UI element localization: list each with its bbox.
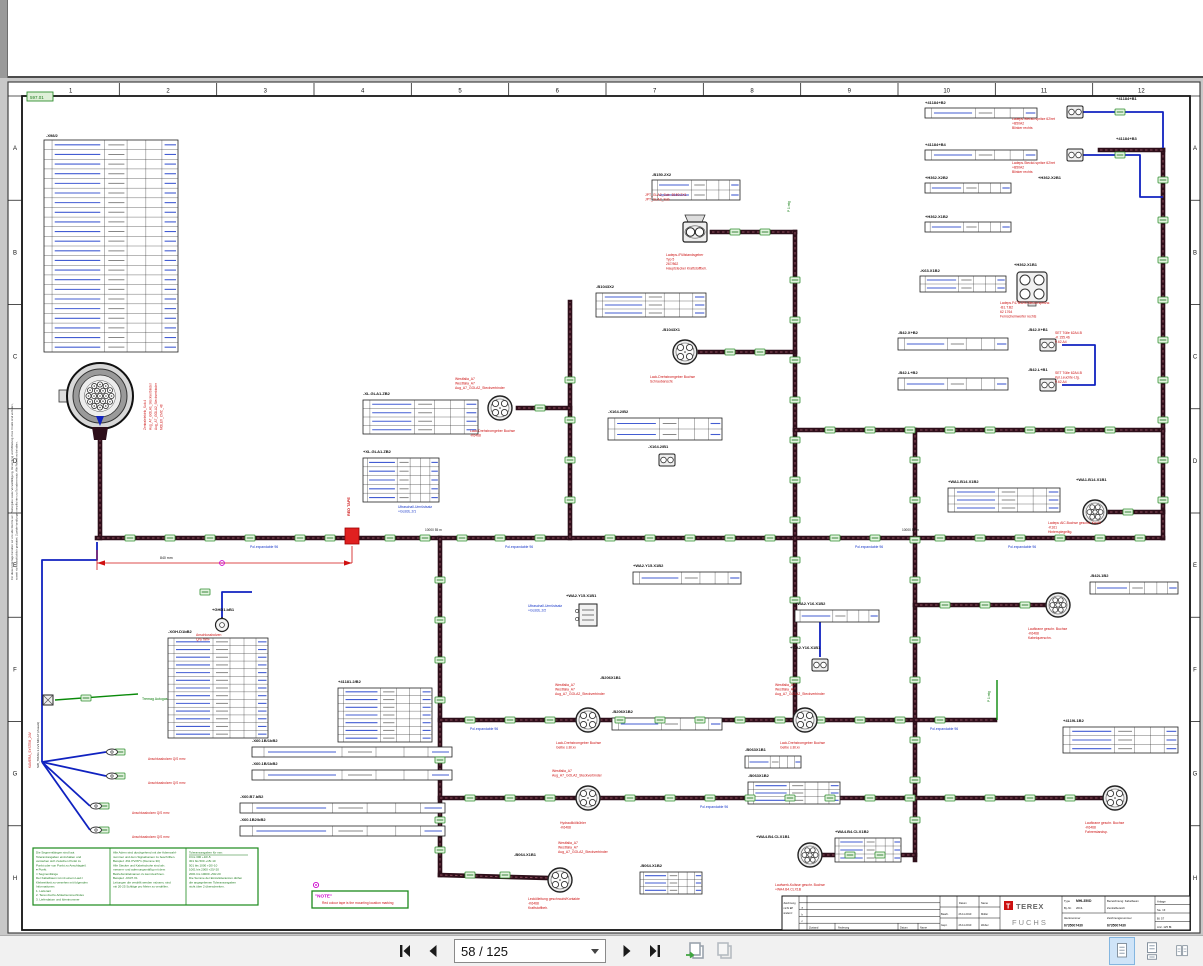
mini-table xyxy=(252,770,452,780)
extract-page-button[interactable] xyxy=(710,938,736,964)
schematic-label: Hinterspiegelltg. xyxy=(1048,530,1072,534)
legend-box: Die Segmentlängen sind lautToleranzangab… xyxy=(33,848,258,905)
schematic-label: Lack-Drehstromgeber Buchse xyxy=(650,375,695,379)
svg-text:T: T xyxy=(1006,904,1011,911)
svg-text:10: 10 xyxy=(943,89,950,95)
schematic-label: Blinker rechts xyxy=(1012,126,1033,130)
header-left-strip xyxy=(0,0,8,78)
schematic-label: -XL.GLA1.ZB2 xyxy=(363,391,391,396)
mini-table xyxy=(920,276,1006,292)
application-window: 123456789101112AABBCCDDEEFFGGHH 597.01 F… xyxy=(0,0,1203,966)
title-block: Zeichnung nicht EP ändern! a b c Zustand… xyxy=(782,896,1190,930)
schematic-label: Hydraulikölkühler xyxy=(560,821,587,825)
schematic-label: +GLB3L.2/1 xyxy=(398,510,416,514)
schematic-label: Westfalia_A7 xyxy=(775,688,795,692)
schematic-label: Zentralelektrik_Sub.4 xyxy=(143,400,147,430)
schematic-label: -K6468 xyxy=(528,902,539,906)
schematic-label: Q/S mm² xyxy=(196,638,210,642)
first-page-button[interactable] xyxy=(392,938,418,964)
schematic-label: SW_TRIAG 1.LV3 MO-A7 (Zusatz) xyxy=(36,722,40,768)
corner-reference-tag: 597.01 xyxy=(27,92,53,101)
brand-terex: TEREX xyxy=(1016,902,1044,911)
schematic-page: 123456789101112AABBCCDDEEFFGGHH 597.01 F… xyxy=(0,80,1203,935)
schematic-label: -B1043X2 xyxy=(596,284,615,289)
prev-page-button[interactable] xyxy=(420,938,446,964)
connector-sq2 xyxy=(1040,379,1056,391)
schematic-label: +41181.2/B2 xyxy=(338,679,362,684)
schematic-label: -B150.2X2 xyxy=(652,172,672,177)
connector-sq2 xyxy=(1040,339,1056,351)
schematic-label: Pol.expandable 96 xyxy=(1008,545,1036,549)
connector-oval xyxy=(107,773,118,779)
mini-table xyxy=(596,293,706,317)
single-page-view-button[interactable] xyxy=(1109,937,1135,965)
svg-text:nicht über 2 überschreiten.: nicht über 2 überschreiten. xyxy=(189,885,225,889)
mini-table xyxy=(252,747,452,757)
svg-text:A: A xyxy=(13,146,17,152)
mini-table xyxy=(44,140,178,352)
schematic-label: -X60.1B/1bB2 xyxy=(252,761,278,766)
schematic-label: MOLEX_CMC_48 xyxy=(160,404,164,430)
svg-text:Bearb.: Bearb. xyxy=(941,912,949,916)
mini-table xyxy=(835,838,901,862)
schematic-label: -K 155.46 xyxy=(1055,336,1070,340)
connector-sens xyxy=(575,604,597,626)
connector-r4 xyxy=(576,708,600,732)
schematic-label: -K6468 xyxy=(1085,826,1096,830)
schematic-label: -X98/2 xyxy=(46,133,59,138)
mini-table xyxy=(925,150,1037,160)
svg-text:11: 11 xyxy=(1041,89,1048,95)
schematic-label: Westfalia_A7 xyxy=(558,846,578,850)
type-label: Type xyxy=(1064,899,1071,903)
mini-table xyxy=(898,338,1008,350)
import-page-button[interactable] xyxy=(682,938,708,964)
footer-zustand: Zustand xyxy=(809,926,819,930)
svg-text:C: C xyxy=(1193,355,1198,361)
schematic-label: Westfalia_A7 xyxy=(552,769,572,773)
schematic-label: Westfalia_A7 xyxy=(775,683,795,687)
footer-aenderung: Änderung xyxy=(838,926,850,930)
schematic-label: +B50A2 xyxy=(1012,166,1024,170)
svg-text:G: G xyxy=(1193,772,1198,778)
svg-text:E: E xyxy=(1193,563,1197,569)
single-page-view-icon xyxy=(1116,940,1128,962)
mini-table xyxy=(240,803,445,813)
schematic-label: +4119L1B2 xyxy=(1063,718,1085,723)
mini-table xyxy=(338,688,432,742)
schematic-label: +H362.X1B2 xyxy=(925,214,949,219)
page-indicator: 58 / 125 xyxy=(455,944,591,959)
schematic-label: Pol.expandable 96 xyxy=(855,545,883,549)
next-page-icon xyxy=(619,943,635,959)
mini-table xyxy=(1090,582,1178,594)
schematic-label: Lack-Drehstromgeber Buchse xyxy=(780,741,825,745)
import-page-icon xyxy=(685,942,705,960)
schematic-label: Kabelquerschn. xyxy=(1028,636,1052,640)
schematic-label: Pol.expandable 96 xyxy=(930,727,958,731)
schematic-label: Pol.expandable 96 xyxy=(700,805,728,809)
svg-text:H: H xyxy=(13,876,17,882)
schematic-label: -K161 xyxy=(1048,526,1057,530)
red-tape-marker xyxy=(345,528,359,544)
brand-fuchs: FUCHS xyxy=(1012,918,1048,927)
schematic-label: +B50A2 xyxy=(1012,122,1024,126)
schematic-label: Kpl.Leuchte-Ltg. xyxy=(1055,376,1080,380)
connector-r4 xyxy=(673,340,697,364)
schematic-label: +WA2.Y16.X1B2 xyxy=(795,601,826,606)
schematic-label: P 1 mtg xyxy=(787,201,791,212)
mini-table xyxy=(168,638,268,738)
proprietary-notice-line1: Für diese Unterlage behalten wir uns all… xyxy=(10,403,14,580)
svg-text:ändern!: ändern! xyxy=(784,911,793,915)
app-header xyxy=(0,0,1203,78)
schematic-label: Schraubanschl. xyxy=(650,380,673,384)
mini-table xyxy=(640,872,702,894)
connector-r6 xyxy=(1046,593,1070,617)
combobox-dropdown-arrow-icon xyxy=(591,949,599,954)
mini-table xyxy=(925,183,1011,193)
svg-text:A: A xyxy=(1193,146,1197,152)
schematic-label: +H362.X2B2 xyxy=(925,175,949,180)
svg-text:3. Lieferdatum und Identnummer: 3. Lieferdatum und Identnummer xyxy=(36,897,80,901)
svg-text:Zentralbereich: Zentralbereich xyxy=(1107,906,1125,910)
schematic-label: 10000 55 m xyxy=(425,528,442,532)
schematic-label: -B42L1B2 xyxy=(1090,573,1109,578)
mini-table xyxy=(363,400,478,434)
prev-page-icon xyxy=(425,943,441,959)
svg-text:F: F xyxy=(1193,667,1197,673)
bottom-toolbar: 58 / 125 xyxy=(0,935,1203,966)
schematic-label: Ladeps.Steckd.spritze 62/ret xyxy=(1012,161,1055,165)
schematic-label: Ladeps.F47B42N.Steckd.spritzw. xyxy=(1000,301,1050,305)
schematic-label: -K6468 xyxy=(560,826,571,830)
schematic-label: -B064.X1B2 xyxy=(640,863,663,868)
schematic-label: Fahrerstandsp. xyxy=(1085,830,1108,834)
svg-text:nicht EP: nicht EP xyxy=(784,906,794,910)
svg-text:B: B xyxy=(1193,250,1197,256)
svg-text:Weber: Weber xyxy=(981,923,989,927)
schematic-label: 267/862 xyxy=(666,262,678,266)
schematic-label: Pol.expandable 96 xyxy=(470,727,498,731)
connector-r4 xyxy=(488,396,512,420)
schematic-label: Gelbe s.Bl.xx xyxy=(556,746,576,750)
next-page-button[interactable] xyxy=(614,938,640,964)
schematic-label: 62 1764 xyxy=(1000,310,1012,314)
schematic-label: -X60.1B/1bB2 xyxy=(252,738,278,743)
mini-table xyxy=(1063,727,1178,753)
svg-text:C: C xyxy=(13,355,18,361)
svg-text:12: 12 xyxy=(1138,89,1145,95)
schematic-label: Aug_A7_GOLA2_Steckverbinder xyxy=(154,382,158,430)
svg-text:Anlage: Anlage xyxy=(1157,900,1166,904)
schematic-label: Lack-Drehstromgeber Buchse xyxy=(556,741,601,745)
schematic-label: -K6468 xyxy=(470,434,481,438)
schematic-label: Ladeps-/Füllstandsgeber xyxy=(666,253,704,257)
schematic-label: Westfalia_A7 xyxy=(555,688,575,692)
schematic-label: 9.62.A4 xyxy=(1055,340,1067,344)
continuous-view-button[interactable] xyxy=(1139,937,1165,965)
schematic-label: Typ 5 xyxy=(666,258,674,262)
schematic-label: +41184+B2 xyxy=(925,100,946,105)
footer-name: Name xyxy=(920,926,927,930)
schematic-label: 9.62.A4 xyxy=(1055,380,1067,384)
schematic-label: -B206X1B2 xyxy=(612,709,634,714)
header-datum: Datum xyxy=(959,901,967,905)
ident-number: 6735007430 xyxy=(1064,924,1083,928)
svg-text:D: D xyxy=(1193,459,1198,465)
schematic-label: -X60.B7.bB2 xyxy=(240,794,264,799)
connector-sq2 xyxy=(1067,106,1083,118)
schematic-label: Fernscheinwerfer rechts xyxy=(1000,315,1037,319)
mini-table xyxy=(612,718,722,730)
mini-table xyxy=(240,826,445,836)
connector-r4 xyxy=(576,786,600,810)
connector-sqb xyxy=(683,215,707,242)
schematic-label: Westfalia_A7 xyxy=(455,377,475,381)
header-name: Name xyxy=(981,901,988,905)
schematic-label: Ultraschall-Umrüstsatz xyxy=(528,604,562,608)
schematic-label: Aug_A7_GOLA2_Steckverbinder xyxy=(552,774,603,778)
mini-table xyxy=(898,378,1008,390)
mini-table xyxy=(363,458,439,502)
schematic-label: Hauptstecker Kraftstoffbeh. xyxy=(666,267,707,271)
note-title: "NOTE" xyxy=(315,894,332,899)
schematic-label: Anschlussbolzen xyxy=(196,633,222,637)
first-page-icon xyxy=(397,943,413,959)
schematic-label: Ultraschall-Umrüstsatz xyxy=(398,505,432,509)
svg-text:B: B xyxy=(13,250,17,256)
schematic-label: +XL.GLA1.ZB2 xyxy=(363,449,392,454)
footer-datum: Datum xyxy=(900,926,908,930)
schematic-label: +GHD1.bB1 xyxy=(212,607,235,612)
schematic-label: +GLB3L.2/2 xyxy=(528,609,546,613)
drawing-number: 6735007430 xyxy=(1107,924,1126,928)
connector-r6 xyxy=(798,843,822,867)
schematic-label: Tremag Autogas xyxy=(142,697,168,701)
schematic-label: -B1043X1 xyxy=(662,327,681,332)
schematic-label: +WA1.B14.X1B1 xyxy=(1076,477,1107,482)
schematic-label: Pol.expandable 96 xyxy=(505,545,533,549)
schematic-label: -B42.L+B2 xyxy=(898,370,918,375)
schematic-label: -X164.2/B2 xyxy=(608,409,629,414)
schematic-label: Anschlussbolzen Q/S mm² xyxy=(148,757,186,761)
schematic-label: Aug_A7_GOLA1_Steckverbinder xyxy=(149,382,153,430)
schematic-label: Anschlussbolzen Q/S mm² xyxy=(148,781,186,785)
schematic-label: Westfalia_A7 xyxy=(555,683,575,687)
schematic-label: +WA2.Y16.X1B1 xyxy=(790,645,821,650)
schematic-label: -B42.X+B2 xyxy=(898,330,919,335)
connector-r4 xyxy=(793,708,817,732)
svg-text:mit 20-25 Schläge pro Meter zu: mit 20-25 Schläge pro Meter zu verdrille… xyxy=(113,885,169,889)
schematic-label: Gelbe s.Bl.xx xyxy=(780,746,800,750)
schematic-label: -X164.2/B1 xyxy=(648,444,669,449)
connector-oval xyxy=(107,749,118,755)
svg-text:26.11.2010: 26.11.2010 xyxy=(959,923,972,927)
schematic-label: RED TAPE xyxy=(347,497,351,516)
schematic-label: JPT_GLA2_Sub -B150.2X1 xyxy=(645,193,687,197)
schematic-label: Anschlussbolzen Q/S mm² xyxy=(132,811,170,815)
schematic-label: Ladeps.Steckd.spritze 62/ret xyxy=(1012,117,1055,121)
connector-sq2 xyxy=(812,659,828,671)
schematic-label: Lack-Drehstromgeber Buchse xyxy=(470,429,515,433)
last-page-button[interactable] xyxy=(642,938,668,964)
schematic-label: +H362.X1B1 xyxy=(1014,262,1038,267)
note-body: Red colour tape is the mounting location… xyxy=(322,901,394,905)
svg-text:F: F xyxy=(13,667,17,673)
schematic-label: -B42.X+B1 xyxy=(1028,327,1049,332)
page-number-combobox[interactable]: 58 / 125 xyxy=(454,939,606,963)
schematic-label: Laufkrane geschr. Buchse xyxy=(1028,627,1067,631)
schematic-label: +WA2.Y15.X1B2 xyxy=(633,563,664,568)
svg-text:Sa. =Z: Sa. =Z xyxy=(1157,908,1166,912)
extract-page-icon xyxy=(713,942,733,960)
schematic-label: -XGH.D1bB2 xyxy=(168,629,193,634)
schematic-label: Aug_A7_GOLA2_Steckverbinder xyxy=(558,850,609,854)
schematic-label: +41184+B1 xyxy=(1116,96,1137,101)
svg-text:26.11.2010: 26.11.2010 xyxy=(959,912,972,916)
schematic-label: +41184+B3 xyxy=(1116,136,1137,141)
schematic-label: SET Tülle 62A4.B xyxy=(1055,371,1083,375)
change-note: Zeichnung xyxy=(784,901,797,905)
sheet-number: Bl. 57 xyxy=(1157,917,1165,921)
svg-text:Gepr.: Gepr. xyxy=(941,923,948,927)
schematic-label: -B42.L+B1 xyxy=(1028,367,1048,372)
svg-text:H: H xyxy=(1193,876,1197,882)
facing-pages-view-icon xyxy=(1176,940,1188,962)
schematic-label: +WA4.B4.CLX1B2 xyxy=(835,829,869,834)
schematic-label: Aug_A7_GOLA2_Steckverbinder xyxy=(775,692,826,696)
schematic-label: -B064.X1B1 xyxy=(514,852,537,857)
schematic-label: Anschlussbolzen Q/S mm² xyxy=(132,835,170,839)
schematic-label: SET Tülle 62A4.B xyxy=(1055,331,1083,335)
connector-r4 xyxy=(1103,786,1127,810)
schematic-label: +41184+B4 xyxy=(925,142,946,147)
schematic-label: Ladepu AIC.Buchse geschd. Kw.62 xyxy=(1048,521,1101,525)
schematic-label: -B206X1B1 xyxy=(600,675,622,680)
connector-sq2 xyxy=(659,454,675,466)
schematic-label: P 1 mtg xyxy=(987,691,991,702)
schematic-label: Leckölleitung geschraubt/Kontakte xyxy=(528,897,580,901)
schematic-label: Laufwerk-Kulisse geschr. Buchse xyxy=(775,883,825,887)
sheet-count: Anz. 125 Bl. xyxy=(1157,925,1172,929)
schematic-label: Aug_A7_GOLA2_Steckverbinder xyxy=(555,692,606,696)
schematic-label: +WA1.B14.X1B2 xyxy=(948,479,979,484)
svg-text:Identnummer: Identnummer xyxy=(1064,916,1081,920)
document-viewer[interactable]: 123456789101112AABBCCDDEEFFGGHH 597.01 F… xyxy=(0,80,1203,935)
schematic-label: Kraftstoffbeh. xyxy=(528,906,548,910)
schematic-label: +WA4.B4.CLX1B1 xyxy=(756,834,790,839)
corner-tag-text: 597.01 xyxy=(30,95,44,100)
schematic-label: -B1.T.B2 xyxy=(1000,306,1013,310)
connector-oval xyxy=(91,827,102,833)
schematic-label: Pol.expandable 96 xyxy=(250,545,278,549)
last-page-icon xyxy=(647,943,663,959)
schematic-label: Aug_A7_GOLA2_Steckverbinder xyxy=(455,386,506,390)
schematic-label: +WA2.Y15.X1B1 xyxy=(566,593,597,598)
schematic-label: -K6468 xyxy=(1028,632,1039,636)
schematic-label: 840 mm xyxy=(160,556,173,560)
svg-text:G: G xyxy=(13,772,18,778)
svg-text:2013-: 2013- xyxy=(1076,906,1083,910)
svg-text:Bj.-Nr.: Bj.-Nr. xyxy=(1064,906,1072,910)
schematic-label: Westfalia_A7 xyxy=(455,382,475,386)
mini-table xyxy=(795,610,879,622)
svg-text:Zeichnungsnummer: Zeichnungsnummer xyxy=(1107,916,1132,920)
schematic-label: +H362.X2B1 xyxy=(1038,175,1062,180)
schematic-label: KAMERA_SYSTEM_24V xyxy=(28,731,32,768)
schematic-label: -B063X1B2 xyxy=(748,773,770,778)
schematic-label: Westfalia_A7 xyxy=(558,841,578,845)
connector-sq2 xyxy=(1067,149,1083,161)
type-value: MHL350D xyxy=(1076,899,1092,903)
schematic-label: Laufkrane geschr. Buchse xyxy=(1085,821,1124,825)
bezeichnung: Bezeichnung: Kabelbaum xyxy=(1107,899,1140,903)
schematic-label: +WA4.B4.CLX1B xyxy=(775,888,802,892)
mini-table xyxy=(633,572,741,584)
continuous-view-icon xyxy=(1146,940,1158,962)
schematic-label: Blinker rechts xyxy=(1012,170,1033,174)
proprietary-notice-line2: soweit nicht ausdrücklich gestattet. Zuw… xyxy=(15,441,19,580)
mini-table xyxy=(925,222,1011,232)
view-mode-group xyxy=(1109,937,1195,965)
mini-table xyxy=(608,418,722,440)
svg-text:Müller: Müller xyxy=(981,912,988,916)
schematic-label: 10000 55 m xyxy=(902,528,919,532)
schematic-label: JPT_GLA2_Sub xyxy=(645,198,670,202)
mini-table xyxy=(948,488,1060,512)
schematic-label: -X60.1B2/bB2 xyxy=(240,817,266,822)
facing-pages-view-button[interactable] xyxy=(1169,937,1195,965)
page-navigation: 58 / 125 xyxy=(392,938,736,964)
schematic-label: -B063X1B1 xyxy=(745,747,767,752)
schematic-label: -K63.X1B2 xyxy=(920,268,941,273)
connector-oval xyxy=(91,803,102,809)
mini-table xyxy=(745,756,801,768)
connector-tiny xyxy=(43,695,53,705)
connector-r4 xyxy=(548,868,572,892)
